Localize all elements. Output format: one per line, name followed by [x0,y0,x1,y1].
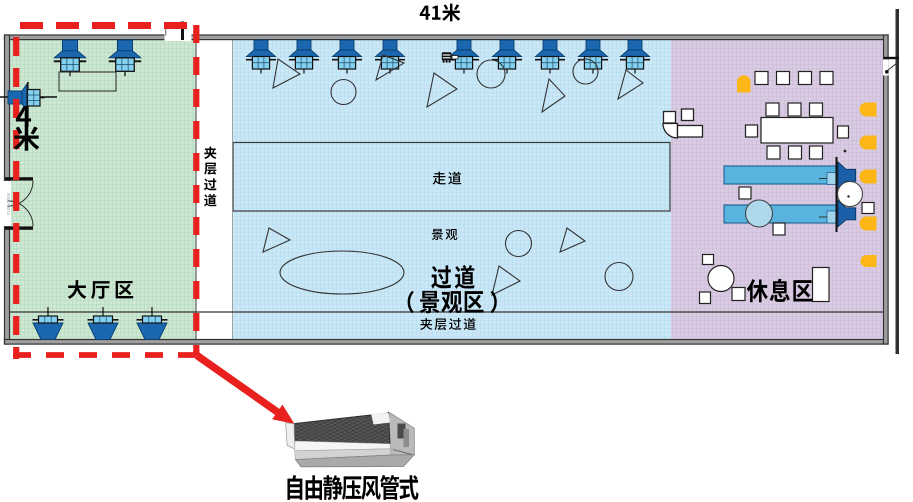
svg-text:2100x2000: 2100x2000 [6,192,11,215]
